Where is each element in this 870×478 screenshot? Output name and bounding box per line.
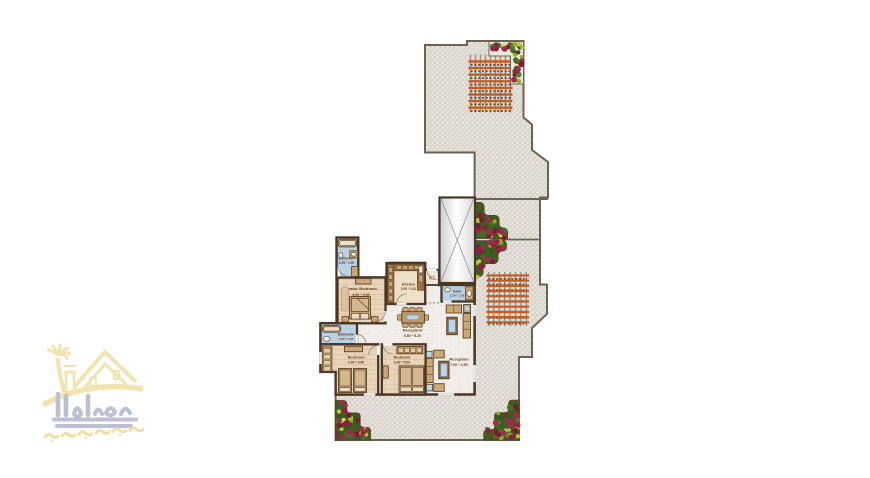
svg-text:Reception: Reception xyxy=(403,328,423,333)
svg-text:7.00 * 4.95: 7.00 * 4.95 xyxy=(450,363,467,367)
svg-text:4.90 * 5.00: 4.90 * 5.00 xyxy=(394,361,411,365)
svg-text:Master Bedroom: Master Bedroom xyxy=(345,286,377,291)
svg-text:3.90 * 3.10: 3.90 * 3.10 xyxy=(401,287,417,291)
svg-text:1.50 * 1.20: 1.50 * 1.20 xyxy=(450,294,465,298)
svg-text:Bedroom: Bedroom xyxy=(348,356,365,360)
svg-text:4.00 * 3.50: 4.00 * 3.50 xyxy=(348,361,365,365)
svg-text:3.00 * 1.90: 3.00 * 1.90 xyxy=(339,337,354,341)
svg-text:Reception: Reception xyxy=(449,357,469,362)
svg-text:3.55 * 1.90: 3.55 * 1.90 xyxy=(339,261,355,265)
svg-text:Kitchen: Kitchen xyxy=(402,283,415,287)
svg-text:5.50 * 5.20: 5.50 * 5.20 xyxy=(404,334,421,338)
svg-text:Bedroom: Bedroom xyxy=(394,356,411,360)
